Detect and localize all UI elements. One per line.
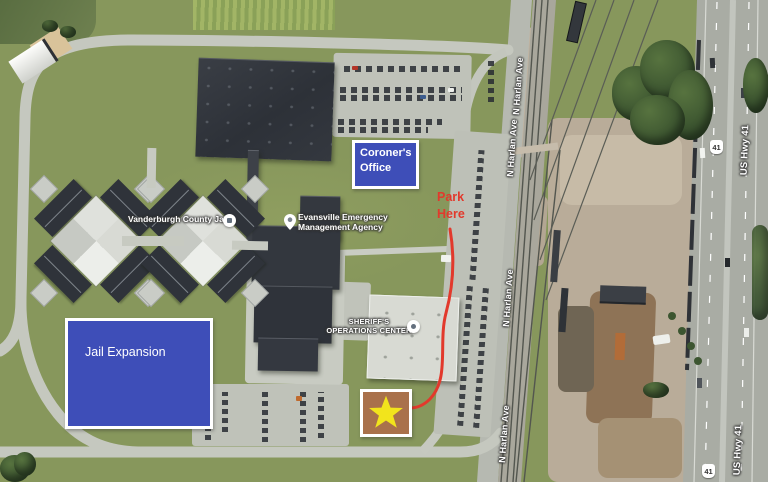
coroners-office-box: Coroner's Office (352, 140, 419, 189)
park-here-label: Park Here (437, 189, 465, 223)
park-here-line2: Here (437, 206, 465, 223)
street-label-hwy41: US Hwy 41 (739, 125, 752, 176)
car-column (318, 392, 324, 438)
tree (60, 26, 76, 38)
yard-shed (600, 285, 647, 305)
bush (678, 327, 686, 335)
car-column (488, 60, 494, 102)
coroners-office-line2: Office (360, 161, 416, 176)
sheriff-poi-icon[interactable] (407, 320, 420, 333)
ema-line2: Management Agency (298, 222, 388, 232)
orange-container (615, 333, 626, 360)
jail-expansion-box: Jail Expansion (65, 318, 213, 429)
car-row (338, 119, 442, 125)
ema-poi-label[interactable]: Evansville Emergency Management Agency (298, 212, 388, 232)
white-van (441, 255, 451, 262)
bush (643, 382, 669, 398)
main-jail-building (195, 58, 334, 162)
tree (752, 225, 768, 320)
orange-car (296, 396, 302, 401)
bottom-parking-lot (192, 384, 349, 446)
car-row (340, 95, 462, 101)
shield-number: 41 (704, 467, 712, 476)
car-row (344, 66, 462, 72)
route-41-shield: 41 (702, 464, 715, 478)
sheriff-line2: OPERATIONS CENTER (326, 327, 412, 336)
white-car (448, 88, 454, 92)
star-location-box (360, 389, 412, 437)
car-column (222, 392, 228, 432)
blue-car (420, 95, 426, 99)
pod-connector (122, 236, 184, 246)
sheriffs-operations-center-building (367, 294, 460, 381)
tree (743, 58, 768, 113)
dot-icon (411, 324, 416, 329)
car-row (340, 87, 462, 93)
ema-line1: Evansville Emergency (298, 212, 388, 222)
street-label-hwy41: US Hwy 41 (732, 425, 745, 476)
red-car (352, 66, 358, 70)
jail-poi-icon[interactable] (223, 214, 236, 227)
car-row (338, 127, 428, 133)
coroners-office-line1: Coroner's (360, 146, 416, 161)
sheriff-poi-label[interactable]: SHERIFF'S OPERATIONS CENTER (326, 318, 412, 335)
star-icon (367, 395, 405, 431)
tree (14, 452, 36, 476)
tree (42, 20, 58, 32)
park-here-line1: Park (437, 189, 465, 206)
satellite-map[interactable]: Vanderburgh County Jail Evansville Emerg… (0, 0, 768, 482)
south-tip-building (258, 337, 319, 371)
jail-expansion-label: Jail Expansion (85, 345, 210, 359)
ema-pin-icon[interactable] (284, 214, 296, 230)
pod-connector (232, 241, 268, 251)
shield-number: 41 (712, 143, 720, 152)
jail-poi-text: Vanderburgh County Jail (128, 214, 229, 224)
car-column (262, 390, 268, 442)
route-41-shield: 41 (710, 140, 723, 154)
bush (694, 357, 702, 365)
star-shape (369, 396, 403, 428)
bush (687, 342, 695, 350)
jail-poi-label[interactable]: Vanderburgh County Jail (128, 214, 229, 224)
building-icon (227, 218, 232, 223)
ema-main-building (251, 225, 340, 290)
tree-cluster (630, 95, 685, 145)
bush (668, 312, 676, 320)
pod-connector (147, 148, 157, 188)
